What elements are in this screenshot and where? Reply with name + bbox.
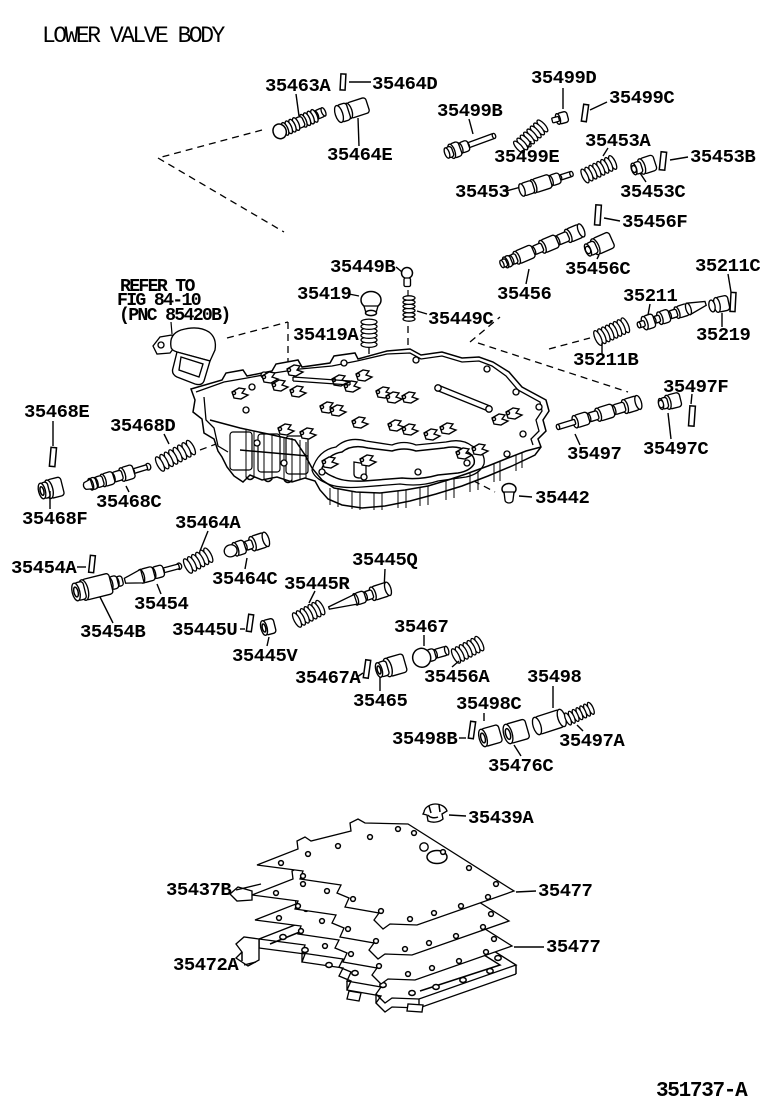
svg-text:35439A: 35439A [468,807,534,829]
svg-text:35468F: 35468F [22,508,87,530]
svg-text:35445R: 35445R [284,573,350,595]
svg-text:35463A: 35463A [265,75,331,97]
svg-text:35498B: 35498B [392,728,457,750]
svg-text:35445U: 35445U [172,619,237,641]
svg-text:35453: 35453 [455,181,510,203]
svg-text:35464E: 35464E [327,144,392,166]
svg-text:35437B: 35437B [166,879,231,901]
svg-text:35476C: 35476C [488,755,553,777]
svg-text:35211: 35211 [623,285,678,307]
svg-text:(PNC 85420B): (PNC 85420B) [119,306,230,326]
svg-text:351737-A: 351737-A [656,1080,748,1103]
svg-text:35445V: 35445V [232,645,298,667]
svg-text:35498: 35498 [527,666,582,688]
svg-text:35497C: 35497C [643,438,708,460]
svg-text:35477: 35477 [546,936,601,958]
svg-text:35498C: 35498C [456,693,521,715]
svg-text:35477: 35477 [538,880,593,902]
svg-text:35499B: 35499B [437,100,502,122]
svg-text:35456F: 35456F [622,211,687,233]
svg-text:35499E: 35499E [494,146,559,168]
svg-text:35449C: 35449C [428,308,493,330]
svg-text:35454A: 35454A [11,557,77,579]
svg-text:35454B: 35454B [80,621,145,643]
svg-text:35211B: 35211B [573,349,638,371]
svg-text:LOWER VALVE BODY: LOWER VALVE BODY [42,23,226,49]
svg-text:35453A: 35453A [585,130,651,152]
svg-text:35464D: 35464D [372,73,437,95]
svg-text:35453B: 35453B [690,146,755,168]
svg-text:35454: 35454 [134,593,189,615]
svg-text:35456: 35456 [497,283,552,305]
svg-text:35468E: 35468E [24,401,89,423]
svg-text:35449B: 35449B [330,256,395,278]
svg-text:35442: 35442 [535,487,590,509]
svg-text:35499C: 35499C [609,87,674,109]
svg-text:35419A: 35419A [293,324,359,346]
svg-text:35211C: 35211C [695,255,760,277]
svg-text:35468D: 35468D [110,415,175,437]
svg-text:35456C: 35456C [565,258,630,280]
svg-text:35219: 35219 [696,324,751,346]
svg-text:35497: 35497 [567,443,622,465]
svg-text:35445Q: 35445Q [352,549,417,571]
svg-text:35464A: 35464A [175,512,241,534]
svg-text:35497A: 35497A [559,730,625,752]
svg-text:35499D: 35499D [531,67,596,89]
svg-text:35464C: 35464C [212,568,277,590]
svg-text:35467: 35467 [394,616,449,638]
svg-text:35456A: 35456A [424,666,490,688]
svg-text:35472A: 35472A [173,954,239,976]
svg-text:35468C: 35468C [96,491,161,513]
svg-text:35419: 35419 [297,283,352,305]
svg-text:35467A: 35467A [295,667,361,689]
svg-text:35465: 35465 [353,690,408,712]
svg-text:35453C: 35453C [620,181,685,203]
